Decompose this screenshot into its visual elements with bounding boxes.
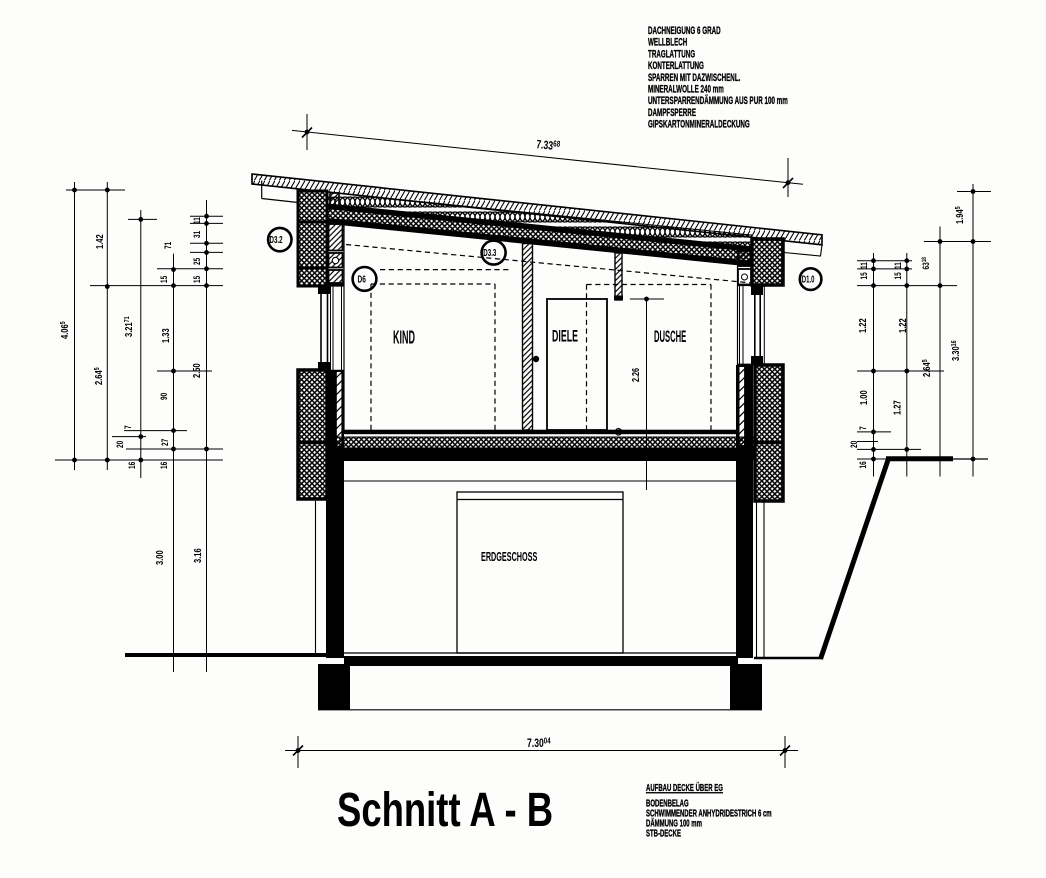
svg-text:SPARREN MIT DAZWISCHENL.: SPARREN MIT DAZWISCHENL. [648,71,740,83]
svg-text:11: 11 [859,262,869,269]
svg-text:1.33: 1.33 [160,328,171,343]
svg-text:27: 27 [160,438,170,446]
svg-text:1.00: 1.00 [858,390,869,405]
svg-text:7: 7 [123,425,133,429]
svg-text:DACHNEIGUNG 6 GRAD: DACHNEIGUNG 6 GRAD [648,24,721,36]
svg-text:3.16: 3.16 [192,548,203,563]
svg-text:16: 16 [127,461,137,469]
svg-text:DAMPFSPERRE: DAMPFSPERRE [648,106,696,118]
svg-text:GIPSKARTONMINERALDECKUNG: GIPSKARTONMINERALDECKUNG [648,118,750,130]
svg-text:KONTERLATTUNG: KONTERLATTUNG [648,59,704,71]
svg-text:11: 11 [192,217,202,224]
svg-text:ERDGESCHOSS: ERDGESCHOSS [481,551,537,564]
svg-text:TRAGLATTUNG: TRAGLATTUNG [648,48,695,60]
svg-text:3.00: 3.00 [154,550,165,565]
svg-text:UNTERSPARRENDÄMMUNG AUS PUR 10: UNTERSPARRENDÄMMUNG AUS PUR 100 mm [648,94,788,106]
svg-text:1.27: 1.27 [891,400,902,415]
svg-text:D3.3: D3.3 [483,246,496,258]
svg-text:25: 25 [192,257,202,265]
svg-text:D6: D6 [358,273,366,285]
svg-text:AUFBAU DECKE ÜBER EG: AUFBAU DECKE ÜBER EG [646,781,723,793]
svg-text:2.50: 2.50 [191,363,202,378]
svg-text:15: 15 [159,275,169,283]
svg-text:DUSCHE: DUSCHE [654,327,686,346]
svg-text:DIELE: DIELE [552,326,578,345]
svg-text:20: 20 [849,440,859,448]
svg-text:Schnitt A - B: Schnitt A - B [337,783,553,837]
svg-text:71: 71 [163,241,173,249]
svg-text:16: 16 [159,461,169,469]
svg-text:15: 15 [893,272,903,280]
svg-text:20: 20 [115,440,125,448]
svg-text:KIND: KIND [393,328,415,348]
svg-text:15: 15 [859,272,869,280]
svg-text:90: 90 [159,392,169,400]
svg-text:2.26: 2.26 [630,368,641,382]
svg-text:1.42: 1.42 [94,234,105,249]
svg-text:WELLBLECH: WELLBLECH [648,36,687,48]
svg-text:7: 7 [858,426,868,430]
svg-text:STB-DECKE: STB-DECKE [646,828,681,839]
svg-text:MINERALWOLLE 240 mm: MINERALWOLLE 240 mm [648,83,724,95]
svg-text:1.22: 1.22 [897,318,908,333]
svg-text:11: 11 [893,262,903,269]
svg-text:D3.2: D3.2 [270,233,283,245]
svg-text:16: 16 [858,461,868,469]
svg-text:31: 31 [192,230,202,238]
svg-text:15: 15 [192,275,202,283]
svg-text:D1.0: D1.0 [802,274,815,285]
svg-text:1.22: 1.22 [857,318,868,333]
